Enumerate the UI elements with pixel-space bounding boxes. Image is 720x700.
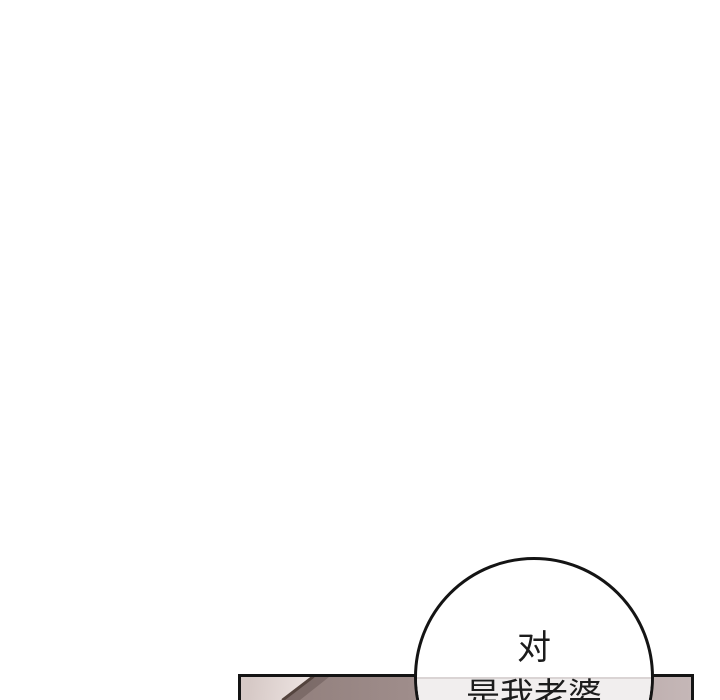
speech-text-line-2: 是我老婆 xyxy=(414,678,654,700)
webtoon-page: 对 是我老婆 xyxy=(0,0,720,700)
speech-text-line-1: 对 xyxy=(414,630,654,666)
